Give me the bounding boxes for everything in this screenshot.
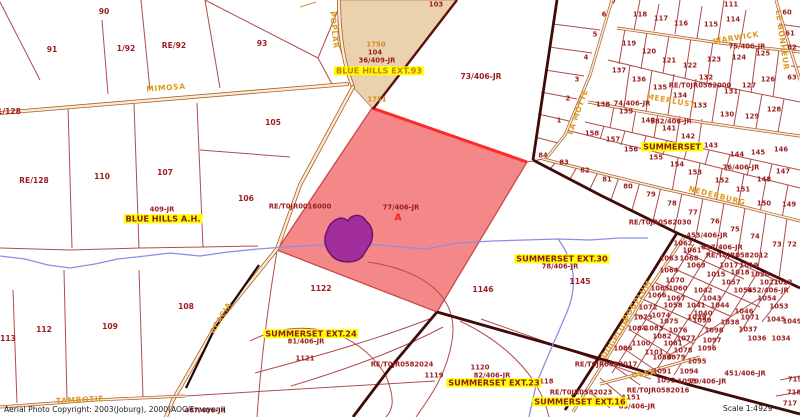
copyright-text: Aerial Photo Copyright: 2003(Joburg), 20… xyxy=(4,405,226,414)
highlight-parcel-77-406-JR[interactable] xyxy=(277,108,527,312)
map-canvas[interactable] xyxy=(0,0,800,417)
map-viewport: 90911/92RE/9293103175010436/409-JR73/406… xyxy=(0,0,800,417)
parcel-lines-dense-block xyxy=(592,244,800,408)
scale-text: Scale 1:4929 xyxy=(723,404,773,413)
parcel-lines-right-grid xyxy=(527,0,800,278)
zone-blue-hills-ext93 xyxy=(338,0,457,109)
